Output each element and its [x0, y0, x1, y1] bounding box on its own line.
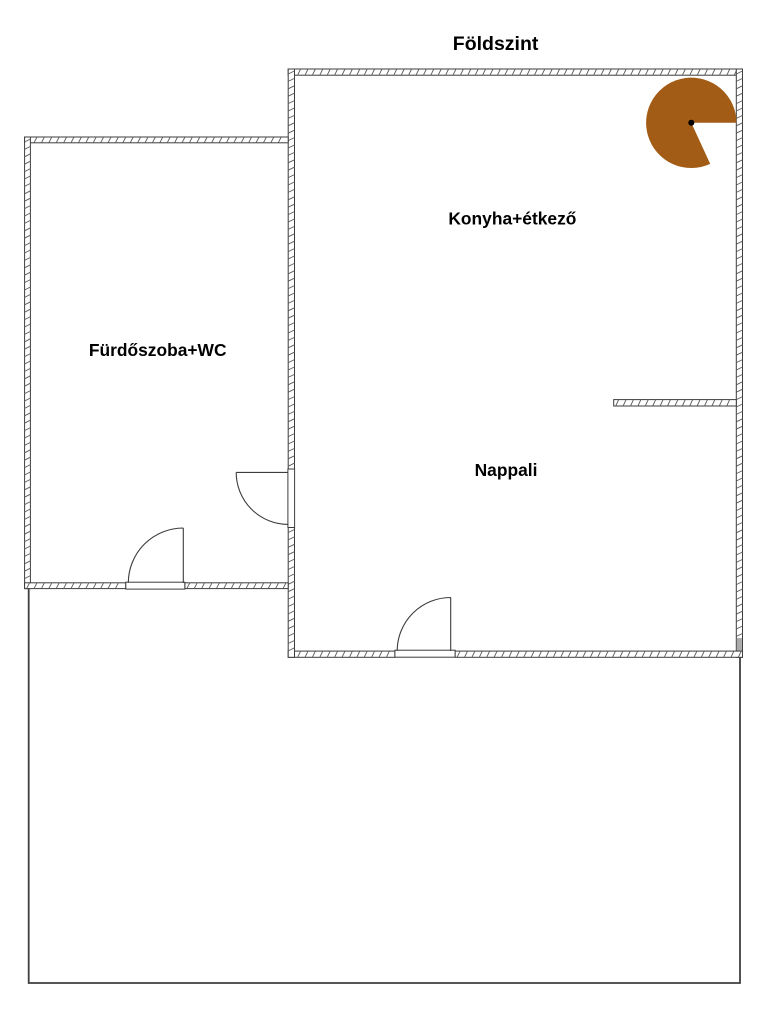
svg-text:Konyha+étkező: Konyha+étkező [448, 209, 576, 229]
svg-text:Fürdőszoba+WC: Fürdőszoba+WC [89, 340, 227, 360]
svg-text:Földszint: Földszint [453, 33, 539, 55]
svg-text:Nappali: Nappali [475, 460, 538, 480]
